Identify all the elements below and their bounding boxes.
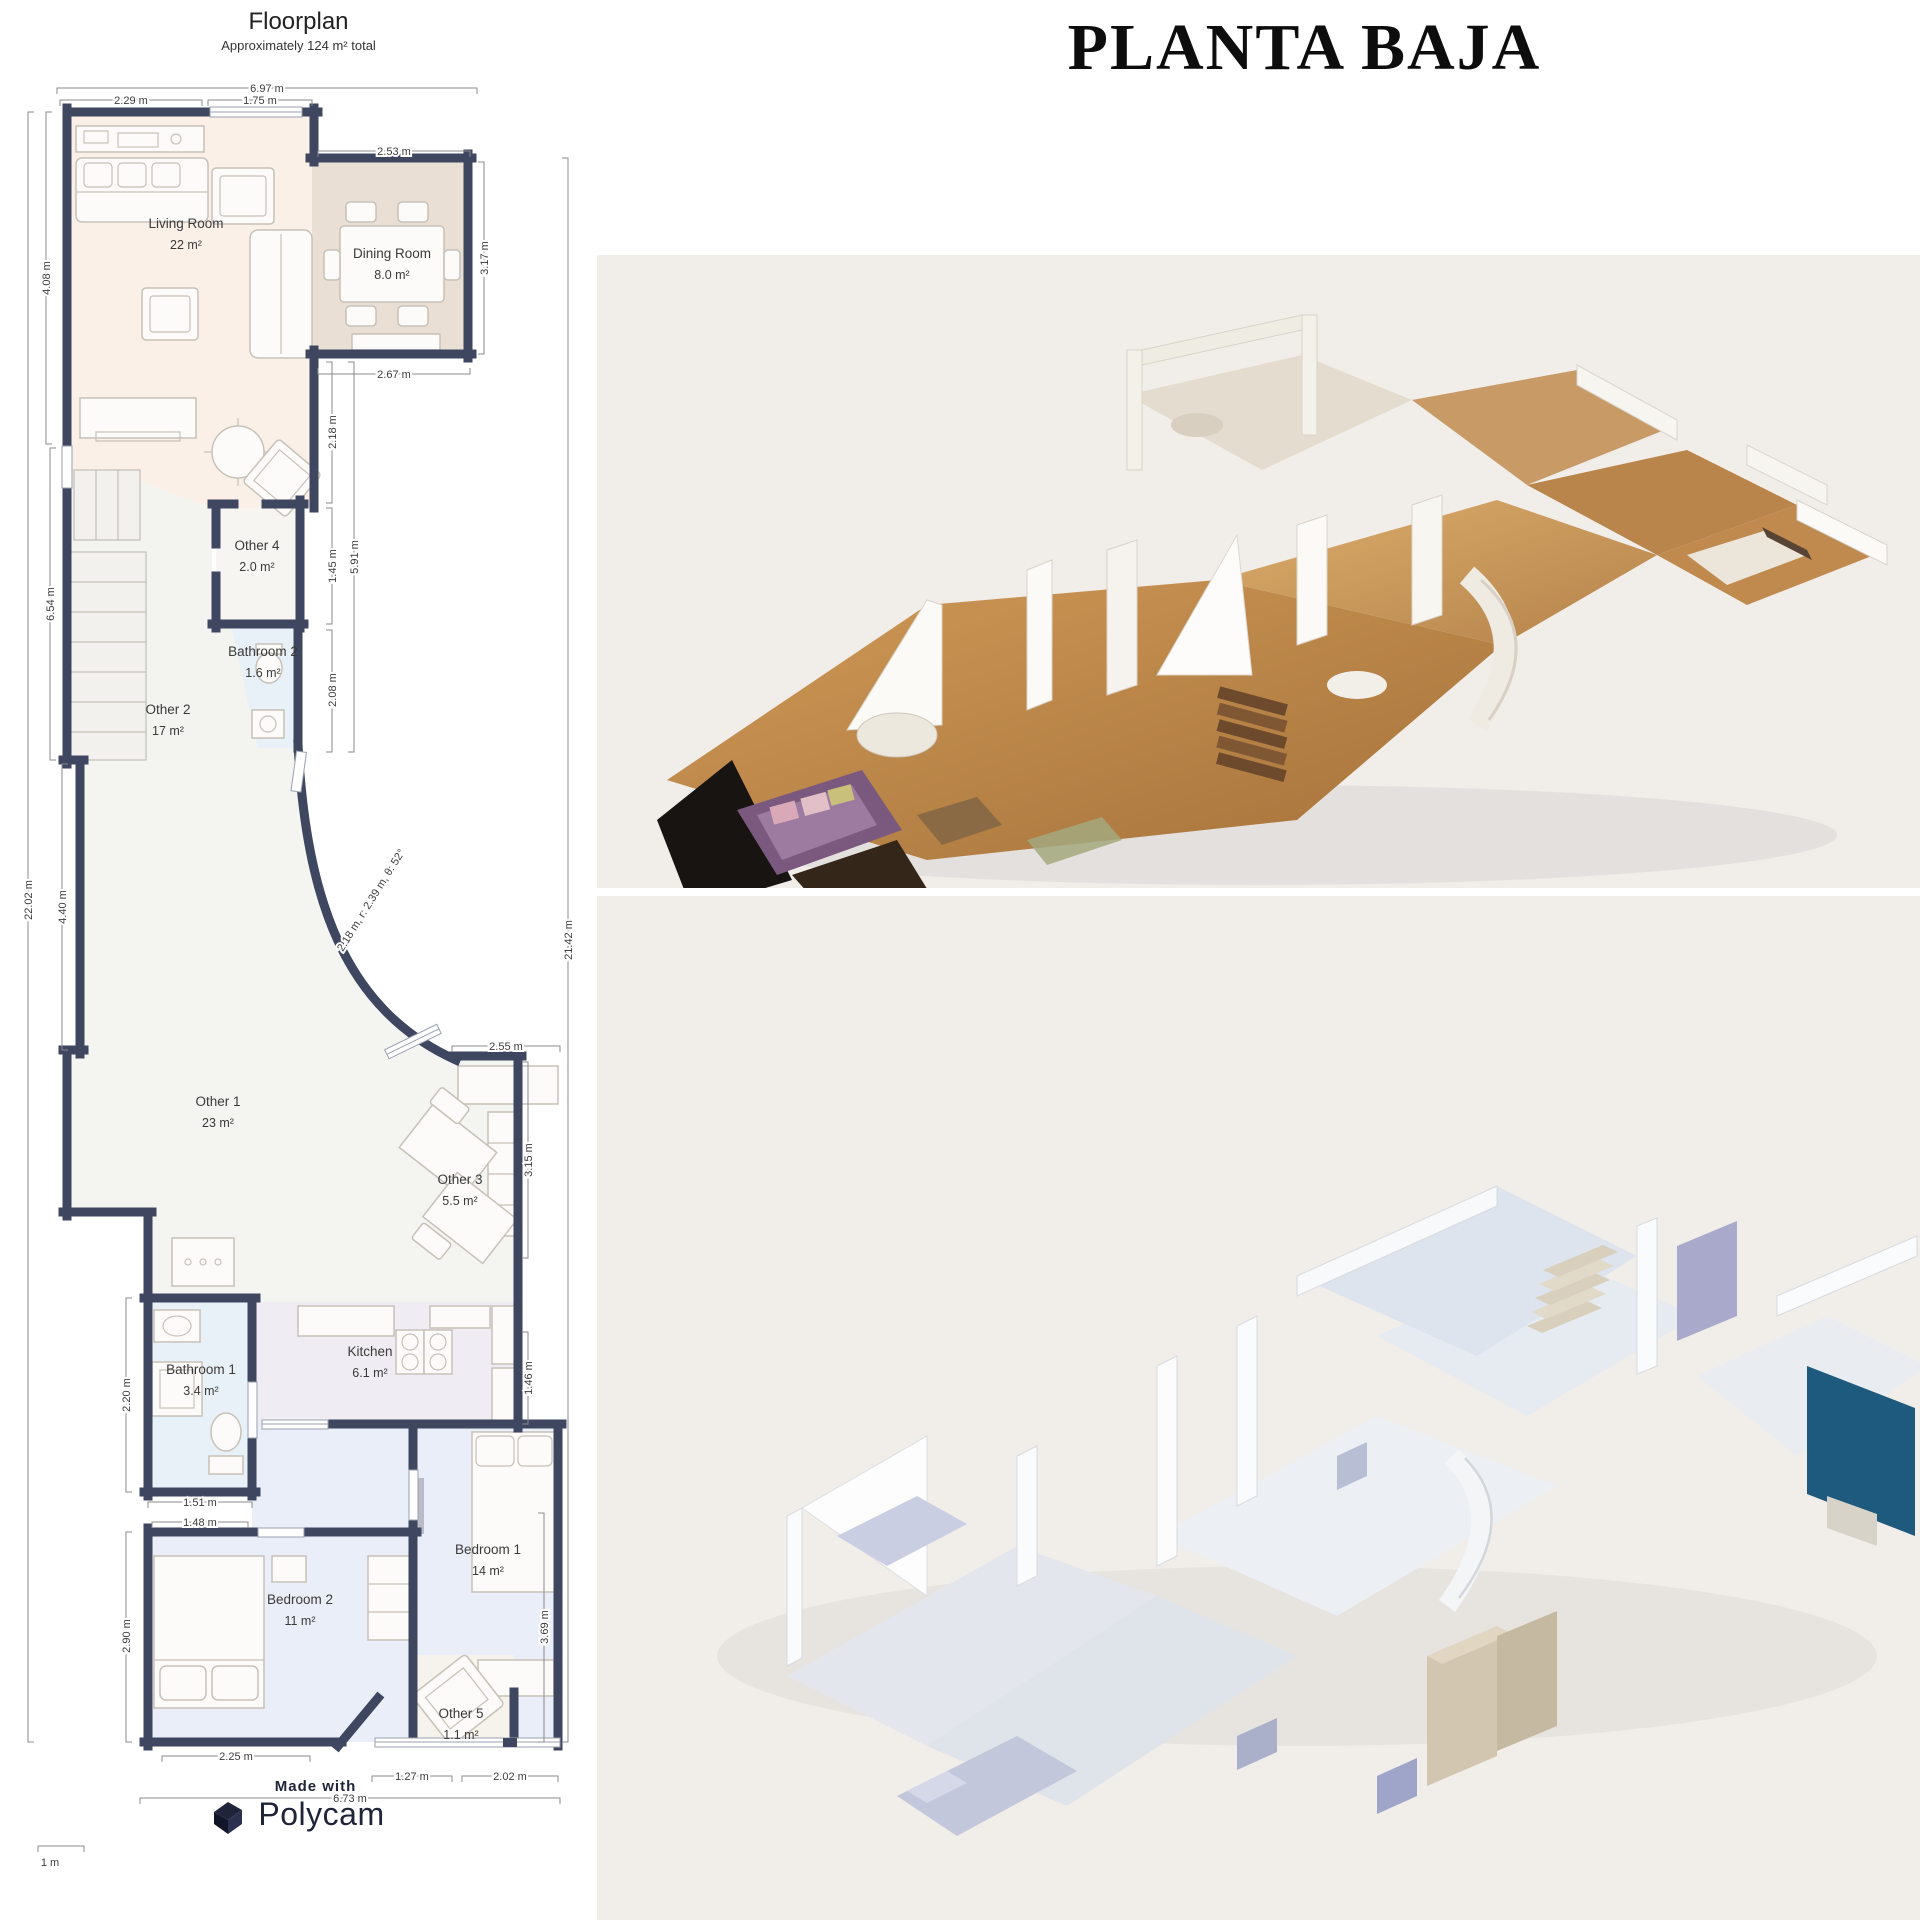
dimension-label: 2.25 m <box>219 1751 253 1763</box>
floorplan-panel: Floorplan Approximately 124 m² total <box>0 0 597 1920</box>
room-area-label: 1.6 m² <box>245 666 280 680</box>
room-label: Bedroom 2 <box>267 1592 333 1607</box>
room-area-label: 8.0 m² <box>374 268 409 282</box>
dimension-label: 4.08 m <box>41 261 53 295</box>
stairs <box>70 470 146 760</box>
dimension-label: 1.45 m <box>327 549 339 583</box>
room-area-label: 2.0 m² <box>239 560 274 574</box>
clay-3d-render <box>597 896 1920 1920</box>
room-area-label: 5.5 m² <box>442 1194 477 1208</box>
room-area-label: 3.4 m² <box>183 1384 218 1398</box>
room-area-label: 11 m² <box>284 1614 315 1628</box>
dimension-label: 1.51 m <box>183 1497 217 1509</box>
render-panel-top <box>597 255 1920 888</box>
dimension-label: 2.18 m, r: 2.39 m, θ: 52° <box>335 847 408 954</box>
dimension-label: 21.42 m <box>563 920 575 960</box>
dimension-label: 6.54 m <box>45 587 57 621</box>
room-label: Other 3 <box>437 1172 482 1187</box>
dimension-label: 2.90 m <box>121 1619 133 1653</box>
room-label: Bedroom 1 <box>455 1542 521 1557</box>
room-area-label: 6.1 m² <box>352 1366 387 1380</box>
dimension-label: 2.18 m <box>327 415 339 449</box>
dimension-label: 4.40 m <box>57 890 69 924</box>
made-with-label: Made with <box>275 1778 357 1795</box>
room-area-label: 17 m² <box>152 724 184 738</box>
dimension-label: 2.67 m <box>377 369 411 381</box>
dimension-label: 3.17 m <box>479 241 491 275</box>
dimension-label: 1.75 m <box>243 95 277 107</box>
room-area-label: 22 m² <box>170 238 202 252</box>
polycam-wordmark: Polycam <box>258 1796 384 1833</box>
room-label: Other 5 <box>438 1706 483 1721</box>
scale-bar-label: 1 m <box>41 1857 59 1869</box>
room-area-label: 1.1 m² <box>443 1728 478 1742</box>
dimension-label: 2.29 m <box>114 95 148 107</box>
dimension-label: 5.91 m <box>349 540 361 574</box>
room-label: Other 2 <box>145 702 190 717</box>
dimension-label: 6.97 m <box>250 83 284 95</box>
render-panel-bottom <box>597 896 1920 1920</box>
dimension-label: 2.08 m <box>327 673 339 707</box>
room-area-label: 23 m² <box>202 1116 234 1130</box>
polycam-logo-icon <box>212 1794 248 1834</box>
room-label: Other 4 <box>234 538 280 553</box>
dimension-label: 3.15 m <box>523 1143 535 1177</box>
dimension-label: 1.48 m <box>183 1517 217 1529</box>
dimension-label: 3.69 m <box>539 1610 551 1644</box>
room-label: Dining Room <box>353 246 431 261</box>
dimension-label: 2.53 m <box>377 146 411 158</box>
floorplan-drawing: Living Room22 m²Dining Room8.0 m²Other 2… <box>0 0 597 1920</box>
room-label: Bathroom 2 <box>228 644 298 659</box>
room-label: Living Room <box>148 216 223 231</box>
dimension-label: 22.02 m <box>23 880 35 920</box>
room-label: Other 1 <box>195 1094 240 1109</box>
dimension-label: 1.46 m <box>523 1361 535 1395</box>
textured-3d-render <box>597 255 1920 888</box>
polycam-credit: Made with Polycam <box>0 1778 597 1834</box>
room-label: Kitchen <box>347 1344 392 1359</box>
page-title: PLANTA BAJA <box>643 10 1920 86</box>
dimension-label: 2.20 m <box>121 1378 133 1412</box>
right-column: PLANTA BAJA <box>597 0 1920 1920</box>
dimension-label: 2.55 m <box>489 1041 523 1053</box>
room-label: Bathroom 1 <box>166 1362 236 1377</box>
room-area-label: 14 m² <box>472 1564 504 1578</box>
